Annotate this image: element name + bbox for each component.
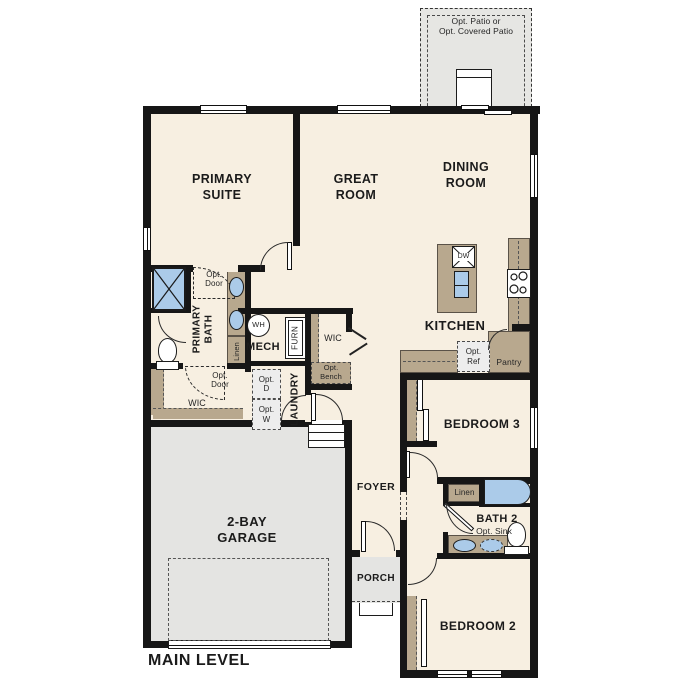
counter-centerline xyxy=(403,361,455,362)
wall-segment xyxy=(400,441,437,447)
wall-segment xyxy=(400,373,407,677)
wall-segment xyxy=(293,106,300,246)
bedroom3-closet-door xyxy=(423,409,429,441)
room-label-kitchen: KITCHEN xyxy=(410,318,500,334)
cased-opening xyxy=(400,492,407,520)
bedroom3-closet-shelf xyxy=(407,376,417,441)
washer-optional: Opt. W xyxy=(252,399,281,430)
room-label-bath2: BATH 2 xyxy=(464,513,530,527)
room-label-laundry: LAUNDRY xyxy=(282,366,308,432)
opt-sink-label: Opt. Sink xyxy=(464,527,524,537)
water-heater: WH xyxy=(247,314,270,337)
wall-segment xyxy=(143,106,151,648)
toilet-tank xyxy=(504,546,529,555)
sink xyxy=(229,310,244,330)
room-label-wic-hall: WIC xyxy=(318,333,348,343)
toilet-tank xyxy=(156,361,179,370)
room-label-bedroom2: BEDROOM 2 xyxy=(426,619,530,634)
sink-optional xyxy=(480,539,503,552)
driveway-outline xyxy=(168,558,329,641)
sink xyxy=(453,539,476,552)
window xyxy=(471,670,502,678)
fireplace-mantel xyxy=(457,70,491,78)
patio-label: Opt. Patio or Opt. Covered Patio xyxy=(422,17,530,37)
bedroom3-closet-door xyxy=(417,378,423,411)
wall-segment xyxy=(305,384,352,390)
room-label-primary-suite: PRIMARY SUITE xyxy=(168,172,276,203)
porch-edge xyxy=(352,601,400,602)
wall-segment xyxy=(443,478,448,504)
wall-segment xyxy=(345,420,352,648)
garage-door xyxy=(168,640,331,649)
opt-bench-label: Opt. Bench xyxy=(320,364,342,381)
wall-segment xyxy=(238,308,353,314)
room-label-foyer: FOYER xyxy=(352,481,400,494)
opt-washer-label: Opt. W xyxy=(259,405,275,423)
dryer-optional: Opt. D xyxy=(252,369,281,399)
bath2-linen-cabinet: Linen xyxy=(448,484,481,502)
bedroom2-closet-shelf xyxy=(407,596,417,670)
opt-ref-label: Opt. Ref xyxy=(466,347,482,365)
linen-label: Linen xyxy=(454,488,474,497)
room-label-bedroom3: BEDROOM 3 xyxy=(432,417,532,432)
primary-wic-shelf-bottom xyxy=(153,408,243,419)
stove xyxy=(507,269,531,298)
room-label-pantry: Pantry xyxy=(486,358,532,368)
opt-door-label-bath: Opt. Door xyxy=(194,270,234,288)
room-label-mech: MECH xyxy=(240,341,286,355)
room-label-primary-bath: PRIMARY BATH xyxy=(186,294,220,364)
opt-door-label-wic: Opt. Door xyxy=(198,371,242,389)
window xyxy=(143,227,151,251)
floor-plan: Opt. Patio or Opt. Covered Patio Opt. Re… xyxy=(0,0,687,687)
sliding-patio-door xyxy=(484,110,512,115)
dishwasher-label: DW xyxy=(457,253,471,261)
stairs xyxy=(308,424,345,448)
shower xyxy=(152,267,186,311)
room-label-porch: PORCH xyxy=(352,573,400,586)
room-label-wic-primary: WIC xyxy=(180,398,214,408)
wall-segment xyxy=(400,670,538,678)
bench-optional: Opt. Bench xyxy=(311,362,351,384)
water-heater-label: WH xyxy=(252,321,265,330)
wall-segment xyxy=(400,373,537,380)
furnace: FURN xyxy=(285,317,306,359)
level-label: MAIN LEVEL xyxy=(148,651,288,671)
wall-segment xyxy=(512,324,538,331)
room-label-garage: 2-BAY GARAGE xyxy=(195,514,299,547)
room-label-dining-room: DINING ROOM xyxy=(416,160,516,191)
porch-step xyxy=(359,603,393,616)
window xyxy=(200,105,247,114)
wall-segment xyxy=(345,557,352,607)
room-label-great-room: GREAT ROOM xyxy=(306,172,406,203)
toilet xyxy=(158,338,177,363)
dishwasher: DW xyxy=(452,246,475,268)
window xyxy=(337,105,391,114)
furnace-label: FURN xyxy=(291,326,301,350)
bathtub xyxy=(484,479,531,505)
window xyxy=(530,154,538,198)
window xyxy=(437,670,468,678)
opt-dryer-label: Opt. D xyxy=(259,375,275,393)
island-sink xyxy=(454,271,469,298)
